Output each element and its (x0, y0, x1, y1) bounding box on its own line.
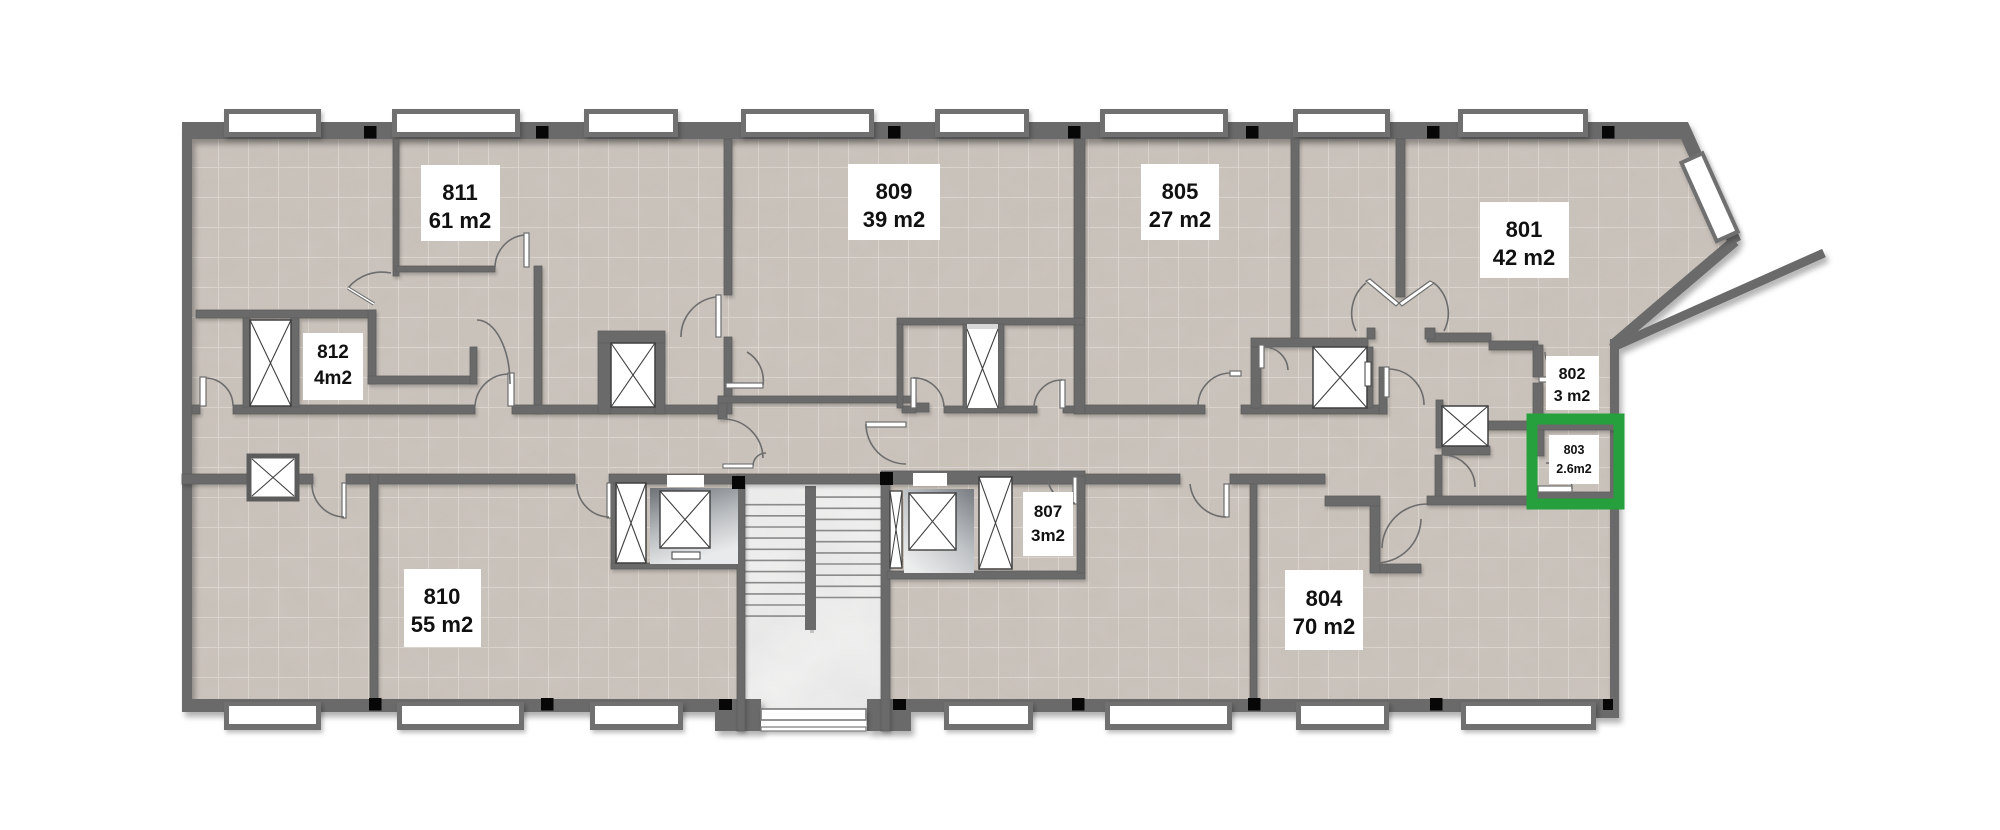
svg-text:55 m2: 55 m2 (411, 612, 473, 637)
svg-text:27 m2: 27 m2 (1149, 207, 1211, 232)
svg-text:811: 811 (442, 180, 478, 205)
svg-text:61 m2: 61 m2 (429, 208, 491, 233)
svg-text:4m2: 4m2 (314, 368, 352, 389)
svg-text:812: 812 (317, 342, 349, 363)
svg-text:70 m2: 70 m2 (1293, 614, 1355, 639)
svg-text:39 m2: 39 m2 (863, 207, 925, 232)
svg-text:2.6m2: 2.6m2 (1556, 462, 1591, 476)
svg-text:805: 805 (1162, 179, 1199, 204)
svg-text:807: 807 (1034, 502, 1062, 521)
svg-text:801: 801 (1506, 217, 1543, 242)
svg-text:42 m2: 42 m2 (1493, 245, 1555, 270)
svg-text:810: 810 (424, 584, 461, 609)
svg-text:804: 804 (1306, 586, 1343, 611)
svg-text:802: 802 (1559, 366, 1586, 383)
svg-text:3m2: 3m2 (1031, 526, 1065, 545)
svg-text:809: 809 (876, 179, 913, 204)
svg-text:803: 803 (1564, 443, 1585, 457)
svg-text:3 m2: 3 m2 (1554, 388, 1591, 405)
